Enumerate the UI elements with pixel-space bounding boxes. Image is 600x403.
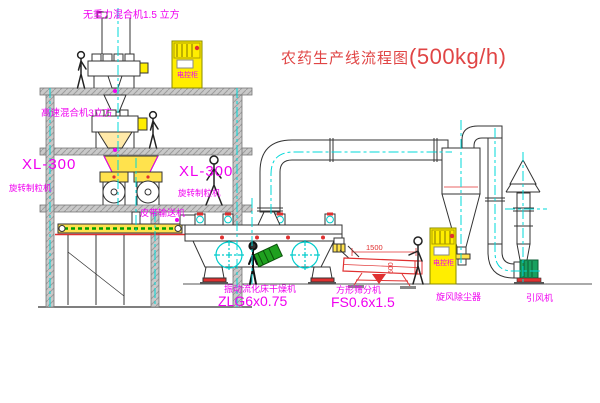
cabinet-display bbox=[434, 247, 449, 255]
diagram-title-capacity: (500kg/h) bbox=[409, 44, 506, 70]
label-granulator-left-name: 旋转制粒机 bbox=[9, 184, 52, 193]
worker-second-floor bbox=[150, 112, 159, 148]
dimension-sieve-length: 1500 bbox=[366, 244, 383, 252]
exhaust-duct-drawing bbox=[257, 138, 448, 225]
worker-top-floor bbox=[78, 52, 87, 88]
label-granulator-mid-model: XL-300 bbox=[179, 164, 233, 179]
label-control-cabinet-top: 电控柜 bbox=[177, 72, 198, 79]
diagram-title-text: 农药生产线流程图 bbox=[281, 47, 409, 68]
sieve-drawing bbox=[340, 246, 422, 289]
label-induced-draft-fan: 引风机 bbox=[526, 294, 553, 303]
cabinet-indicator-light bbox=[195, 46, 199, 50]
label-cyclone: 旋风除尘器 bbox=[436, 293, 481, 302]
belt-conveyor-drawing bbox=[55, 224, 185, 305]
diagram-title: 农药生产线流程图 (500kg/h) bbox=[281, 44, 506, 70]
label-zero-gravity-mixer: 无重力混合机1.5 立方 bbox=[83, 11, 180, 21]
label-control-cabinet-right: 电控柜 bbox=[433, 260, 454, 267]
ground-lines bbox=[38, 284, 592, 307]
worker-near-dryer bbox=[249, 242, 257, 284]
label-fluid-bed-dryer-model: ZLG6x0.75 bbox=[218, 294, 287, 308]
dimension-sieve-width: 600 bbox=[388, 262, 395, 274]
label-belt-conveyor: 皮带输送机 bbox=[140, 209, 185, 218]
fan-drawing bbox=[514, 260, 544, 285]
cabinet-display bbox=[177, 60, 193, 68]
label-square-sieve-model: FS0.6x1.5 bbox=[331, 295, 395, 309]
pesticide-line-diagram: 农药生产线流程图 (500kg/h) 无重力混合机1.5 立方 高速混合机3立方… bbox=[0, 0, 600, 403]
control-cabinet-top bbox=[172, 41, 202, 88]
control-cabinet-right bbox=[430, 228, 456, 284]
label-granulator-left-model: XL-300 bbox=[22, 157, 76, 172]
label-granulator-mid-name: 旋转制粒机 bbox=[178, 189, 221, 198]
label-high-speed-mixer: 高速混合机3立方 bbox=[41, 109, 113, 119]
cabinet-indicator-light bbox=[450, 234, 454, 238]
